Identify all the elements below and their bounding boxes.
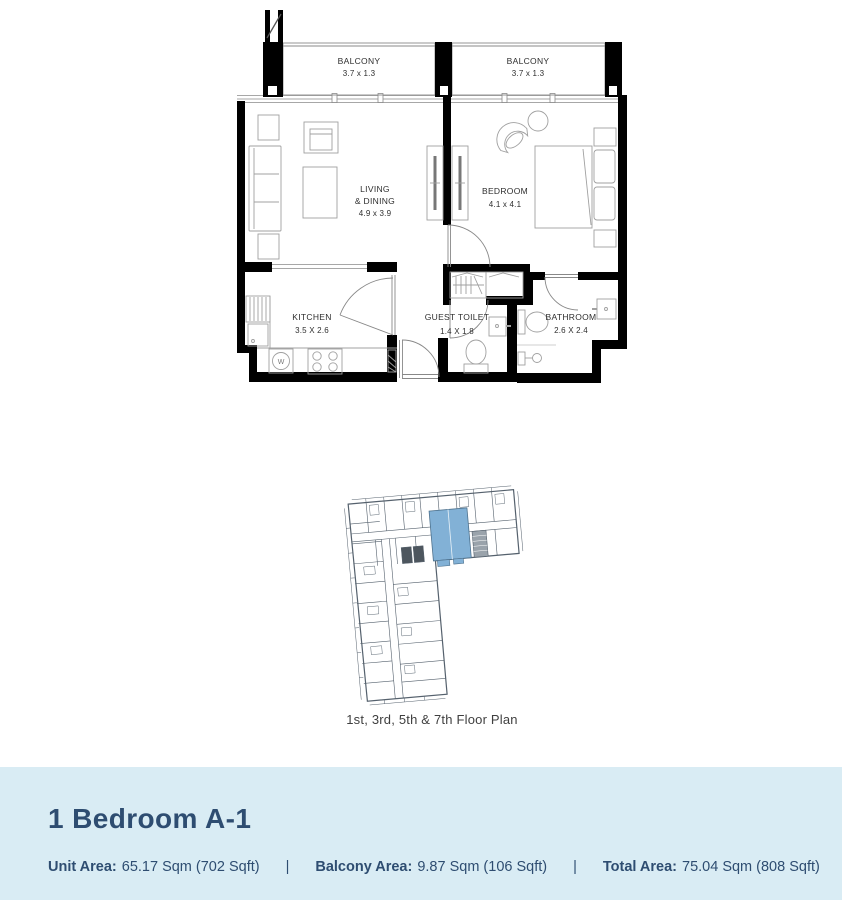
svg-text:4.1 x 4.1: 4.1 x 4.1 bbox=[489, 200, 522, 209]
nightstand bbox=[594, 128, 616, 146]
stair-core bbox=[472, 530, 488, 557]
unit-area-value: 65.17 Sqm (702 Sqft) bbox=[122, 859, 260, 875]
svg-text:BATHROOM: BATHROOM bbox=[546, 312, 597, 322]
svg-text:BALCONY: BALCONY bbox=[338, 56, 381, 66]
tv-unit bbox=[427, 146, 443, 220]
separator: | bbox=[573, 859, 577, 875]
total-area-label: Total Area: bbox=[603, 859, 677, 875]
side-table-top bbox=[258, 115, 279, 140]
entrance-door-arc bbox=[402, 340, 439, 377]
svg-text:& DINING: & DINING bbox=[355, 196, 395, 206]
separator: | bbox=[286, 859, 290, 875]
unit-title: 1 Bedroom A-1 bbox=[48, 803, 842, 835]
svg-text:BALCONY: BALCONY bbox=[507, 56, 550, 66]
total-area-value: 75.04 Sqm (808 Sqft) bbox=[682, 859, 820, 875]
kitchen-door-arc bbox=[340, 278, 393, 315]
key-plan bbox=[344, 485, 535, 705]
living-dining-label: LIVING & DINING 4.9 x 3.9 bbox=[355, 184, 395, 218]
svg-text:3.5 X 2.6: 3.5 X 2.6 bbox=[295, 326, 329, 335]
kitchen-label: KITCHEN 3.5 X 2.6 bbox=[292, 312, 331, 335]
lounge-chair bbox=[490, 116, 531, 156]
area-line: Unit Area:65.17 Sqm (702 Sqft) | Balcony… bbox=[48, 859, 842, 875]
svg-text:3.7 x 1.3: 3.7 x 1.3 bbox=[343, 69, 376, 78]
highlighted-unit bbox=[429, 508, 472, 567]
svg-text:LIVING: LIVING bbox=[360, 184, 390, 194]
guest-toilet-fixtures bbox=[464, 317, 511, 373]
living-furniture bbox=[249, 115, 443, 259]
kitchen-sink bbox=[246, 296, 270, 346]
stove bbox=[308, 349, 342, 374]
toilet bbox=[518, 310, 548, 334]
total-area: Total Area:75.04 Sqm (808 Sqft) bbox=[603, 859, 820, 875]
pillar-notches bbox=[268, 86, 617, 95]
bedroom-door-arc bbox=[448, 225, 490, 267]
svg-text:1.4 X 1.8: 1.4 X 1.8 bbox=[440, 327, 474, 336]
kitchen-door-leaf bbox=[340, 315, 393, 335]
unit-area-label: Unit Area: bbox=[48, 859, 117, 875]
shower bbox=[517, 345, 556, 365]
wardrobe bbox=[452, 146, 468, 220]
unit-floor-plan: W BALCONY bbox=[0, 0, 842, 760]
balcony-area-value: 9.87 Sqm (106 Sqft) bbox=[417, 859, 547, 875]
balcony-right-label: BALCONY 3.7 x 1.3 bbox=[507, 56, 550, 78]
armchair bbox=[304, 122, 338, 153]
bathroom-door-arc bbox=[545, 277, 578, 310]
svg-text:4.9 x 3.9: 4.9 x 3.9 bbox=[359, 209, 392, 218]
svg-text:GUEST TOILET: GUEST TOILET bbox=[425, 312, 490, 322]
svg-text:KITCHEN: KITCHEN bbox=[292, 312, 331, 322]
bathroom-label: BATHROOM 2.6 X 2.4 bbox=[546, 312, 597, 335]
toilet bbox=[464, 340, 488, 373]
svg-text:BEDROOM: BEDROOM bbox=[482, 186, 528, 196]
doors bbox=[340, 225, 578, 379]
side-table-bottom bbox=[258, 234, 279, 259]
bed bbox=[535, 128, 616, 247]
pillow bbox=[594, 150, 615, 183]
pillow bbox=[594, 187, 615, 220]
unit-info-band: 1 Bedroom A-1 Unit Area:65.17 Sqm (702 S… bbox=[0, 767, 842, 900]
sofa bbox=[249, 146, 281, 231]
svg-text:3.7 x 1.3: 3.7 x 1.3 bbox=[512, 69, 545, 78]
key-plan-caption: 1st, 3rd, 5th & 7th Floor Plan bbox=[346, 712, 517, 727]
kitchen-counter bbox=[257, 296, 397, 348]
kitchen-fixtures bbox=[246, 296, 397, 374]
coffee-table bbox=[303, 167, 337, 218]
balcony-area-label: Balcony Area: bbox=[315, 859, 412, 875]
round-side-table bbox=[528, 111, 548, 131]
balcony-left-label: BALCONY 3.7 x 1.3 bbox=[338, 56, 381, 78]
unit-area: Unit Area:65.17 Sqm (702 Sqft) bbox=[48, 859, 260, 875]
washer-label: W bbox=[278, 359, 285, 366]
svg-text:2.6 X 2.4: 2.6 X 2.4 bbox=[554, 326, 588, 335]
nightstand bbox=[594, 230, 616, 247]
balcony-area: Balcony Area:9.87 Sqm (106 Sqft) bbox=[315, 859, 547, 875]
closet bbox=[450, 272, 523, 298]
bedroom-label: BEDROOM 4.1 x 4.1 bbox=[482, 186, 528, 209]
kitchen-opening-line bbox=[272, 265, 367, 269]
